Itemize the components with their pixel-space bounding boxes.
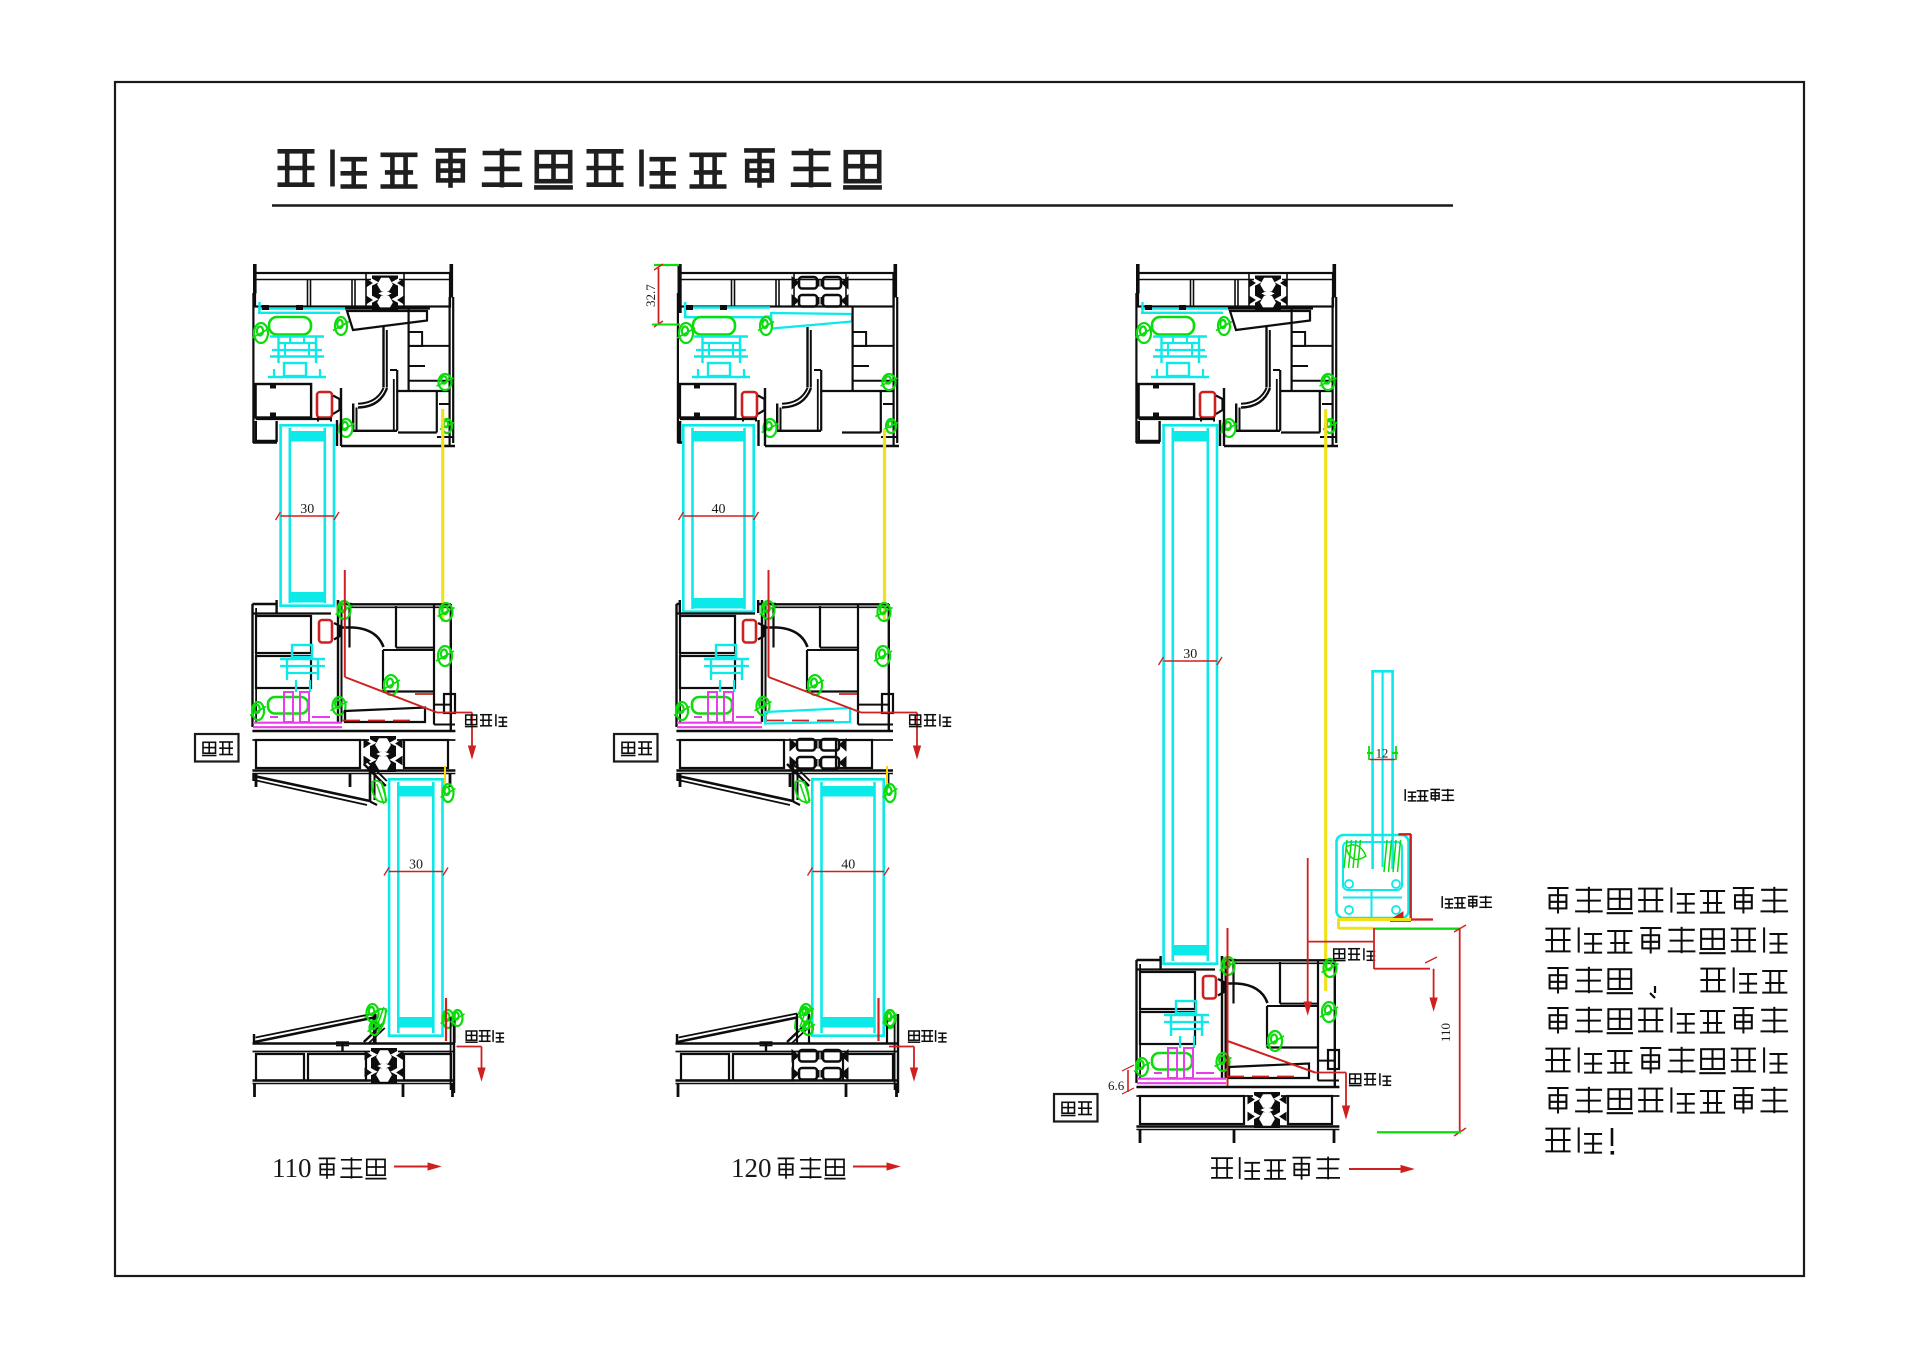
svg-text:6.6: 6.6 <box>1108 1078 1125 1093</box>
svg-text:30: 30 <box>300 502 314 517</box>
svg-text:30: 30 <box>409 858 423 873</box>
svg-text:40: 40 <box>712 502 726 517</box>
svg-text:120: 120 <box>731 1153 772 1183</box>
svg-text:30: 30 <box>1183 647 1197 662</box>
svg-text:40: 40 <box>841 858 855 873</box>
svg-text:110: 110 <box>1438 1023 1453 1042</box>
svg-text:12: 12 <box>1376 747 1389 761</box>
svg-text:32.7: 32.7 <box>643 284 658 307</box>
svg-text:110: 110 <box>272 1153 312 1183</box>
